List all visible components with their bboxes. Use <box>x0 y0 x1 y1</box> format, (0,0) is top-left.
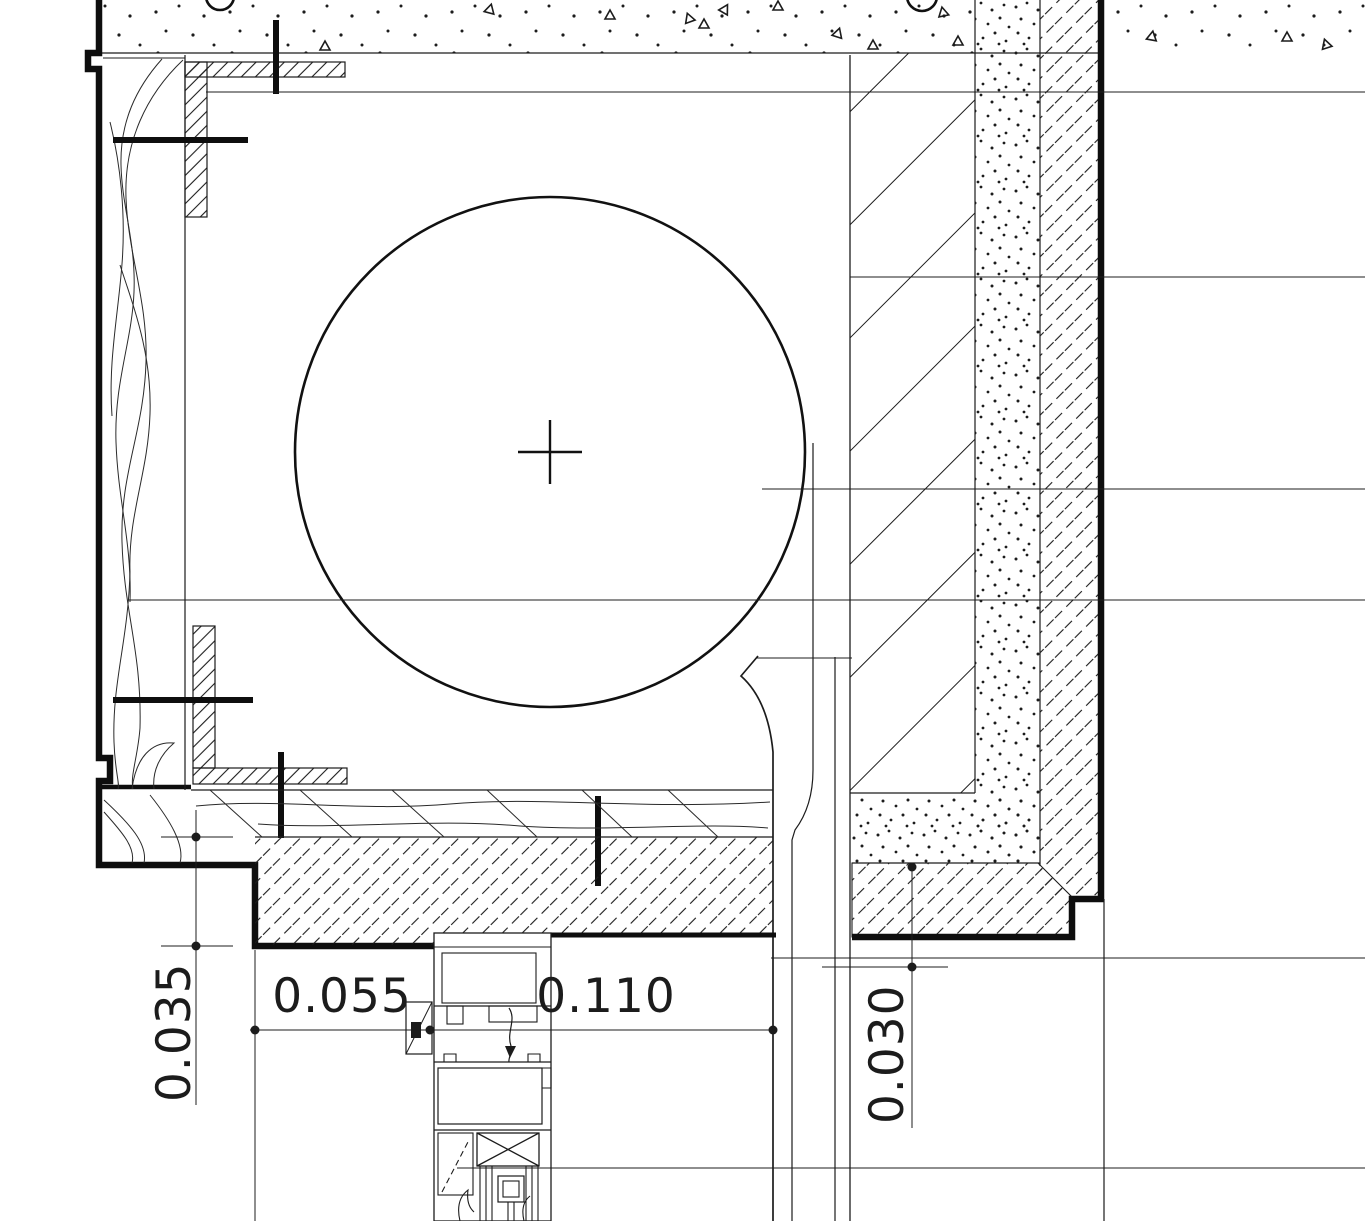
drawing-sheet: 0.035 0.055 0.110 0.030 <box>0 0 1365 1221</box>
wood-grain <box>110 59 183 789</box>
shutter-slat-line <box>792 443 813 1221</box>
roller-shutter-barrel <box>295 197 805 707</box>
steel-angle-bottom <box>193 626 347 784</box>
masonry-hatch-band <box>850 53 975 793</box>
dim-label-left-step: 0.035 <box>147 962 202 1102</box>
dim-label-sill-outer: 0.110 <box>536 969 676 1024</box>
render-stipple-band <box>975 0 1040 863</box>
top-concrete-slab <box>97 0 1365 53</box>
window-frame-profile <box>406 933 551 1221</box>
dim-label-sill-inner: 0.055 <box>272 969 412 1024</box>
funnel-guide <box>741 656 773 1221</box>
shutter-guide-channel <box>741 55 852 1221</box>
right-soffit-screed <box>852 863 1072 937</box>
exterior-render-band <box>1040 0 1100 897</box>
slab-stipple-texture <box>103 0 975 53</box>
architectural-section-detail: 0.035 0.055 0.110 0.030 <box>0 0 1365 1221</box>
dim-label-right-soffit: 0.030 <box>860 984 915 1124</box>
sill-screed <box>255 837 773 946</box>
render-stipple-corner <box>852 793 1040 863</box>
slab-stipple-texture-right <box>1104 0 1365 50</box>
center-cross <box>518 420 582 484</box>
